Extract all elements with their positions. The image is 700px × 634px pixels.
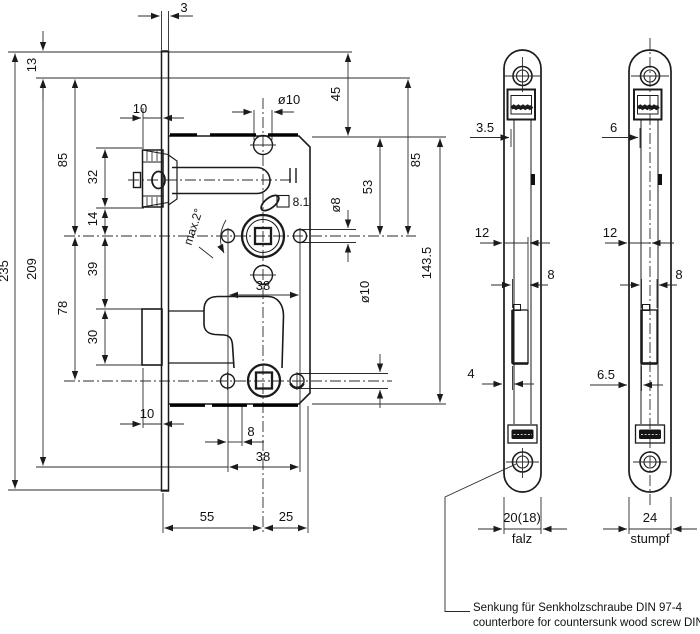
- dim-85-left: 85: [55, 153, 70, 167]
- dim-falz-cutout-8: 8: [547, 267, 554, 282]
- faceplate-stumpf-view: 6 12 8 6.5 24 stumpf: [590, 38, 697, 546]
- dim-backset-55: 55: [200, 509, 214, 524]
- dim-78: 78: [55, 301, 70, 315]
- dim-hole-dia-top: ø10: [278, 92, 300, 107]
- label-stumpf: stumpf: [630, 531, 669, 546]
- dim-plate-length: 235: [0, 260, 11, 282]
- centerlines: [64, 98, 416, 533]
- dims-stumpf: 6 12 8 6.5 24 stumpf: [590, 120, 697, 546]
- dim-falz-12: 12: [475, 225, 489, 240]
- dims-top: 3 10 ø10: [120, 0, 300, 118]
- latch-nub: [658, 174, 663, 185]
- note-english: counterbore for countersunk wood screw D…: [473, 617, 700, 629]
- dim-39: 39: [85, 262, 100, 276]
- lock-technical-drawing: 3 10 ø10 235 209 13 85 78 32 14: [0, 0, 700, 634]
- dim-deadbolt-protrusion: 10: [140, 406, 154, 421]
- dim-hole-dia-bottom: ø10: [357, 281, 372, 303]
- dim-spindle-8-1: 8.1: [293, 195, 310, 209]
- dim-209: 209: [24, 258, 39, 280]
- dims-left: 235 209 13 85 78 32 14 39 30: [0, 31, 105, 489]
- dim-53: 53: [360, 180, 375, 194]
- dim-falz-offset: 3.5: [476, 120, 494, 135]
- faceplate-side: [162, 51, 169, 491]
- dims-falz: 3.5 12 8 4 20(18) falz: [467, 120, 567, 546]
- dim-stumpf-offset: 6: [610, 120, 617, 135]
- deadbolt-cutout: [642, 305, 658, 364]
- note-german: Senkung für Senkholzschraube DIN 97-4: [473, 602, 683, 614]
- dim-30: 30: [85, 330, 100, 344]
- dim-8-bottom: 8: [247, 424, 254, 439]
- label-max-2-deg: max.2°: [181, 207, 206, 247]
- dim-falz-4: 4: [467, 366, 474, 381]
- dim-hole-dia-8: ø8: [328, 197, 343, 212]
- dim-14: 14: [85, 212, 100, 226]
- latch-opening: [634, 90, 662, 120]
- faceplate-falz-view: 3.5 12 8 4 20(18) falz: [467, 50, 567, 546]
- construction-lines: [8, 11, 446, 533]
- deadbolt-cutout: [513, 305, 529, 364]
- dim-case-height: 143.5: [419, 247, 434, 280]
- dim-85-right: 85: [408, 153, 423, 167]
- dim-32: 32: [85, 170, 100, 184]
- dim-25: 25: [279, 509, 293, 524]
- dim-falz-width: 20(18): [503, 510, 541, 525]
- dim-latch-protrusion: 10: [133, 101, 147, 116]
- latch-opening: [508, 90, 536, 120]
- dim-stumpf-6-5: 6.5: [597, 367, 615, 382]
- latch-bolt: [134, 150, 271, 207]
- dim-stumpf-cutout-8: 8: [675, 267, 682, 282]
- dim-13: 13: [24, 58, 39, 72]
- dim-plate-thickness: 3: [180, 0, 187, 15]
- brand-stamp: [508, 425, 537, 443]
- lock-case: [168, 135, 310, 405]
- deadbolt: [142, 297, 304, 397]
- latch-nub: [531, 174, 536, 185]
- dim-38-lower: 38: [256, 449, 270, 464]
- drawing-canvas: 3 10 ø10 235 209 13 85 78 32 14: [0, 0, 700, 634]
- dims-bottom: 38 8 38 10 55 25: [120, 278, 307, 528]
- dim-45: 45: [328, 87, 343, 101]
- dim-stumpf-width: 24: [643, 510, 657, 525]
- main-view: 3 10 ø10 235 209 13 85 78 32 14: [0, 0, 446, 533]
- label-falz: falz: [512, 531, 532, 546]
- dim-stumpf-12: 12: [603, 225, 617, 240]
- dim-38-upper: 38: [256, 278, 270, 293]
